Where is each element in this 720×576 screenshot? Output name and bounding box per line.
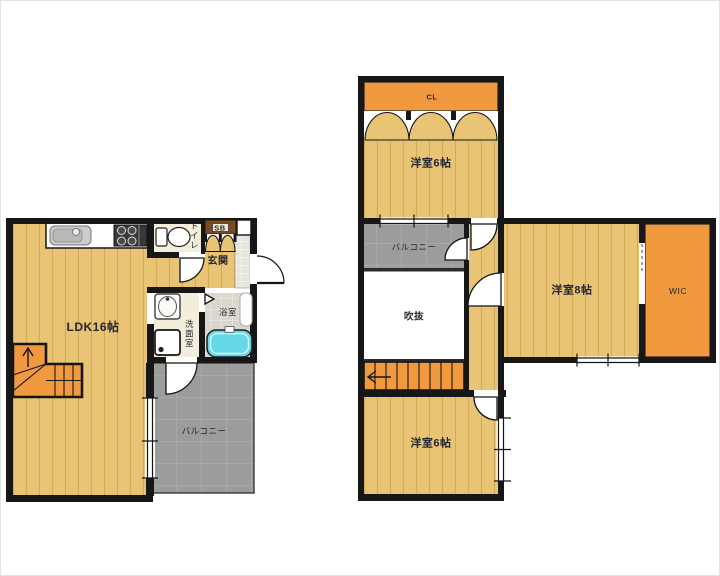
wall-2f-top (358, 76, 504, 82)
wall-2f-right (710, 218, 716, 363)
closet-doors (364, 111, 498, 140)
wall-1f-bottom (6, 495, 153, 502)
label-closet: CL (427, 93, 438, 101)
label-entrance: 玄関 (208, 257, 229, 267)
label-washroom: 洗面室 (185, 320, 194, 349)
label-bathroom: 浴室 (219, 308, 237, 317)
stove (114, 225, 147, 246)
label-wic: WIC (669, 287, 687, 296)
label-shoe-box: SB (214, 224, 225, 232)
label-balcony-2f: バルコニー (392, 243, 437, 252)
floor-plan-page: LDK16帖 トイレ SB 玄関 洗面室 浴室 バルコニー CL 洋室6帖 バル… (0, 0, 720, 576)
shoe-box-doors (204, 234, 237, 252)
toilet-fixture (156, 228, 190, 247)
bath-counter (240, 293, 252, 326)
balcony-rail-2f (364, 268, 464, 272)
wall-2f-left (358, 76, 364, 501)
floor1-plan (6, 218, 284, 502)
washing-machine (155, 330, 180, 355)
front-door (250, 254, 284, 284)
faucet-icon (73, 229, 80, 236)
wall-2f-bottom (358, 494, 504, 501)
label-toilet: トイレ (190, 222, 199, 251)
bathtub (207, 327, 252, 358)
washbasin (155, 294, 180, 319)
kitchen-counter (46, 224, 147, 248)
label-bedroom-east: 洋室8帖 (551, 286, 592, 297)
window-bedroom-south (494, 418, 511, 481)
label-bedroom-south: 洋室6帖 (410, 439, 451, 450)
floor-plan-drawing (1, 1, 720, 576)
entrance-pillar (237, 220, 251, 235)
label-atrium: 吹抜 (404, 312, 424, 322)
wall-ext-top (504, 218, 716, 224)
entrance-tile (235, 235, 250, 288)
label-balcony-1f: バルコニー (182, 427, 227, 436)
label-ldk: LDK16帖 (66, 321, 119, 333)
stairs-2f (364, 362, 464, 390)
label-bedroom-north: 洋室6帖 (410, 159, 451, 170)
